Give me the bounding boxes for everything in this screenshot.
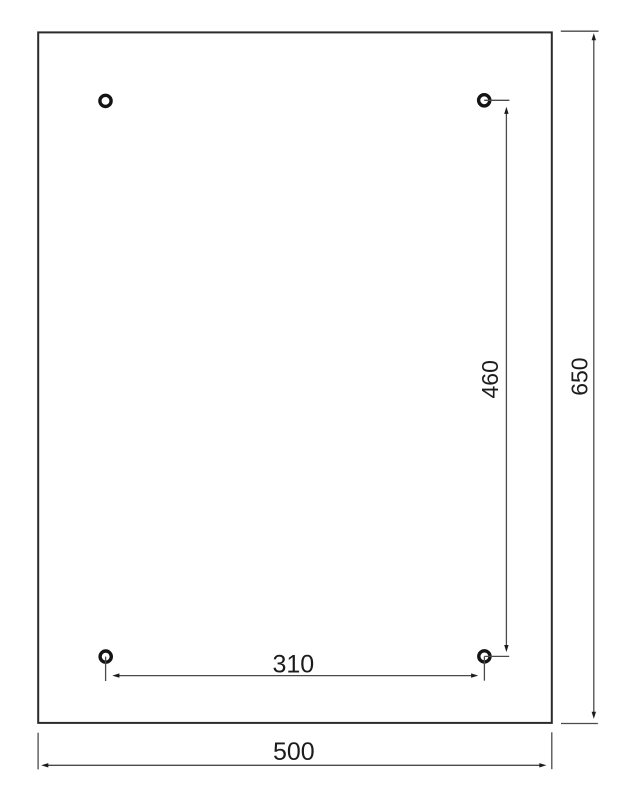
svg-text:460: 460 — [477, 360, 503, 398]
svg-text:500: 500 — [273, 738, 315, 766]
svg-text:310: 310 — [272, 651, 314, 679]
svg-text:650: 650 — [567, 357, 593, 395]
